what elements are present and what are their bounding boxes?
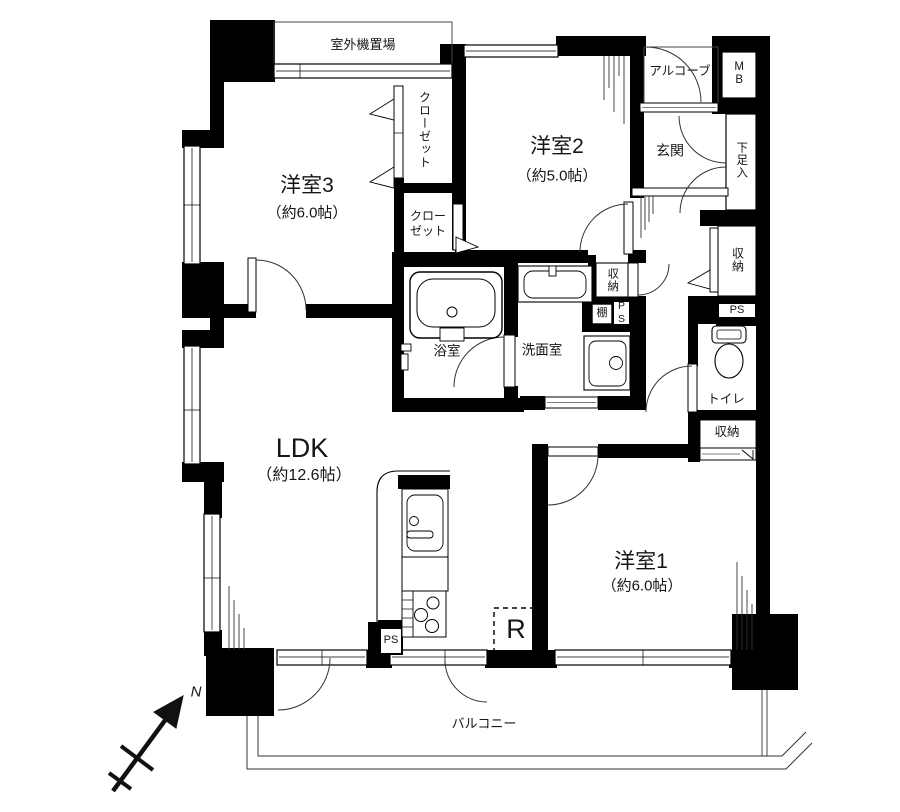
toilet-door-arc [646,366,692,412]
label-bedroom1-size: （約6.0帖） [602,578,683,597]
kitchen-counter-icon [377,471,450,637]
bedroom3-door-leaf [248,258,256,312]
label-refrigerator-space: R [506,613,526,647]
balcony-outline [247,690,812,769]
floorplan-drawing [0,0,900,812]
outdoor-areas [274,22,718,103]
label-bedroom1-storage: 収納 [714,425,739,441]
bath-door-leaf [504,335,515,387]
label-meter-box: MB [732,61,746,87]
balcony-door-ldk [277,650,367,665]
label-bath: 浴室 [434,344,461,361]
label-north: N [191,684,202,703]
label-bedroom1: 洋室1 [614,549,668,575]
label-shelf: 棚 [597,307,608,321]
hall-storage-door-arc [638,264,669,295]
washbasin-icon [518,266,592,302]
label-bedroom3-size: （約6.0帖） [267,205,348,224]
window-ldk-left-upper [184,346,200,464]
balcony-door-kitchen [390,650,487,665]
label-ldk-size: （約12.6帖） [256,466,351,486]
bedroom3-door-arc [256,260,306,310]
balcony-door-ldk-arc [278,658,330,710]
window-bedroom3-left [184,146,200,264]
label-outdoor-unit-area: 室外機置場 [330,37,395,53]
bedroom1-storage-bifold-door [700,448,756,460]
label-bedroom3: 洋室3 [280,173,334,199]
bedro om1-door-leaf [548,447,598,456]
bedroom2-door-leaf [624,202,633,254]
label-alcove: アルコーブ [649,64,710,80]
bedroom1-door-arc [548,455,598,505]
label-closet-tall: クローゼット [417,91,432,169]
label-bedroom2-size: （約5.0帖） [517,168,598,187]
window-ldk-left-lower [204,514,220,632]
north-arrow-icon [109,696,183,791]
toilet-icon [712,326,746,378]
balcony-door-kitchen-arc [445,660,487,702]
label-pipe-space-mid: PS [614,300,627,326]
label-hall-storage-mid: 収納 [605,268,619,293]
label-pipe-space-kitchen: PS [384,634,399,648]
bath-door-arc [454,337,504,387]
label-pipe-space-right: PS [730,304,745,318]
bedroom2-door-arc [580,204,628,252]
hall-storage-mid-door-leaf [628,263,638,297]
label-hall-storage-right: 収納 [730,247,745,273]
label-closet-small: クロー ゼット [410,209,446,239]
window-bedroom2-top [464,45,558,57]
walls [182,20,798,716]
label-shoe-cabinet: 下足入 [734,141,748,179]
label-washroom: 洗面室 [522,343,563,360]
washing-machine-icon [584,336,630,390]
window-bedroom3-top [274,64,452,78]
hall-storage-right-door-leaf [710,228,718,292]
label-entrance: 玄関 [656,142,684,160]
floorplan-page: 室外機置場 洋室3 （約6.0帖） クローゼット クロー ゼット 洋室2 （約5… [0,0,900,812]
label-bedroom2: 洋室2 [530,134,584,160]
label-toilet: トイレ [707,392,745,408]
entrance-step [632,188,728,196]
shoe-cabinet-door-arc-1 [679,116,726,163]
window-bedroom1-bottom [555,650,731,665]
closet-tall-door [394,86,403,178]
toilet-door-leaf [688,364,697,412]
label-ldk: LDK [276,432,329,466]
label-balcony: バルコニー [452,716,517,732]
